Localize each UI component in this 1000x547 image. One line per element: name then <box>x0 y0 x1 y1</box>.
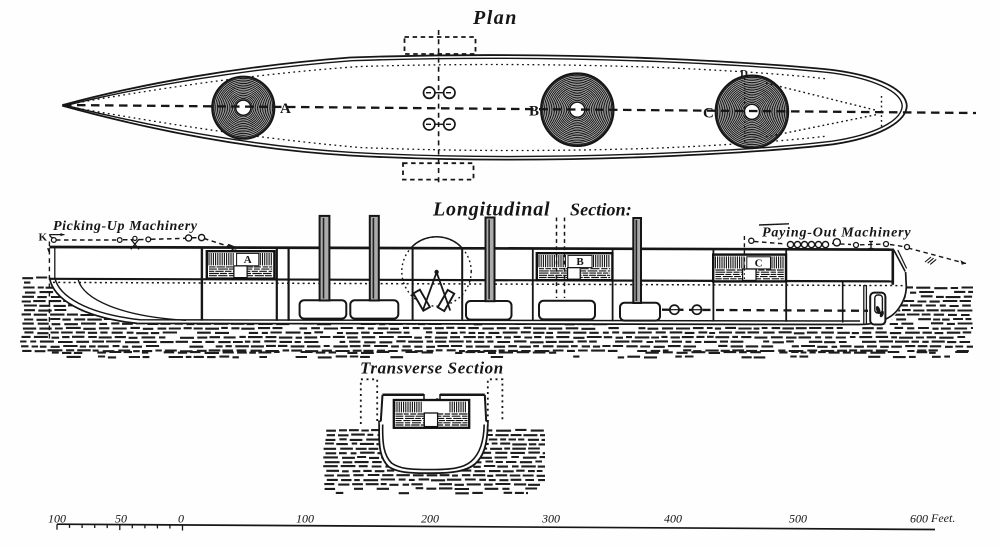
svg-text:600: 600 <box>910 512 928 526</box>
svg-text:50: 50 <box>115 512 127 526</box>
svg-text:0: 0 <box>178 512 184 526</box>
svg-text:Section:: Section: <box>570 200 632 220</box>
svg-text:B: B <box>576 256 584 268</box>
svg-text:400: 400 <box>664 512 682 526</box>
svg-text:100: 100 <box>48 512 66 526</box>
svg-text:B: B <box>529 104 539 120</box>
svg-text:D: D <box>740 68 748 80</box>
svg-text:K: K <box>39 232 48 244</box>
svg-text:C: C <box>703 106 714 122</box>
svg-text:500: 500 <box>789 512 807 526</box>
svg-text:200: 200 <box>421 512 439 526</box>
svg-text:Picking-Up Machinery: Picking-Up Machinery <box>53 219 198 234</box>
svg-text:A: A <box>244 254 252 266</box>
svg-text:Feet.: Feet. <box>930 511 955 525</box>
svg-text:A: A <box>280 101 291 117</box>
svg-text:100: 100 <box>296 512 314 526</box>
svg-text:C: C <box>755 257 763 269</box>
svg-text:Plan: Plan <box>472 7 518 29</box>
svg-text:Transverse Section: Transverse Section <box>360 359 504 378</box>
svg-text:300: 300 <box>541 512 560 526</box>
